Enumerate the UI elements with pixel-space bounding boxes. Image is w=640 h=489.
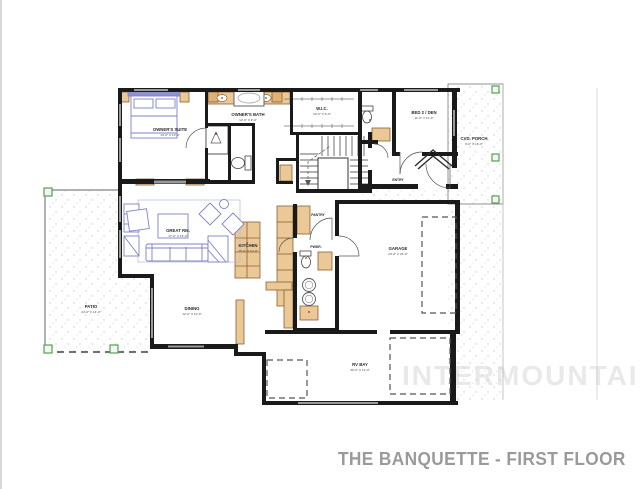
dryer [303, 293, 316, 306]
svg-text:10'-6" X 6'-0": 10'-6" X 6'-0" [313, 112, 331, 116]
porch-area [362, 84, 597, 400]
porch-post [492, 196, 499, 203]
patio-post [44, 188, 52, 196]
label-great-room: GREAT RM. [166, 228, 190, 233]
staircase [300, 136, 368, 190]
armchair [127, 209, 150, 232]
plan-title: THE BANQUETTE - FIRST FLOOR [338, 449, 626, 470]
label-dining: DINING [184, 306, 200, 311]
porch-post [492, 86, 499, 93]
svg-text:14'-0" X 13'-0": 14'-0" X 13'-0" [160, 133, 180, 137]
svg-text:30'-0" X 14'-0": 30'-0" X 14'-0" [350, 368, 370, 372]
svg-text:9'-0" X 16'-0": 9'-0" X 16'-0" [465, 142, 483, 146]
label-bed2: BED 2 / DEN [411, 110, 436, 115]
label-pantry: PANTRY [311, 213, 325, 217]
chaise [208, 236, 228, 262]
sofa [146, 244, 208, 261]
floor-plan-drawing: OWNER'S SUITE 14'-0" X 13'-0" OWNER'S BA… [0, 0, 640, 489]
svg-text:23'-0" X 23'-0": 23'-0" X 23'-0" [388, 252, 408, 256]
svg-text:12'-6" X 9'-0": 12'-6" X 9'-0" [239, 118, 257, 122]
label-garage: GARAGE [389, 246, 408, 251]
shop-stall [390, 338, 450, 394]
patio-post [110, 345, 118, 353]
floor-plan-page: INTERMOUNTAIN [0, 0, 640, 489]
patio-post [44, 345, 52, 353]
toilet-bath2 [361, 106, 373, 123]
svg-text:24'-0" X 14'-0": 24'-0" X 14'-0" [81, 310, 101, 314]
svg-text:15'-0" X 10'-0": 15'-0" X 10'-0" [238, 249, 258, 253]
svg-text:12'-0" X 10'-6": 12'-0" X 10'-6" [182, 312, 202, 316]
tub [234, 90, 264, 106]
toilet-powder [300, 251, 311, 268]
label-entry: ENTRY [392, 178, 404, 182]
toilet-owners [232, 156, 252, 170]
svg-text:11'-0" X 11'-0": 11'-0" X 11'-0" [414, 116, 433, 120]
shower [206, 126, 228, 154]
label-powder: PWDR. [310, 245, 321, 249]
label-shop: RV BAY [352, 362, 368, 367]
washer [303, 279, 316, 292]
label-kitchen: KITCHEN [238, 243, 257, 248]
label-patio: PATIO [85, 304, 98, 309]
label-porch: CVD. PORCH [461, 136, 488, 141]
shop-stall [267, 360, 307, 398]
label-owners-bath: OWNER'S BATH [231, 112, 264, 117]
side-table [220, 200, 229, 209]
label-owners-suite: OWNER'S SUITE [153, 127, 187, 132]
svg-text:17'-0" X 15'-0": 17'-0" X 15'-0" [168, 234, 188, 238]
accent-chair [199, 203, 221, 225]
porch-post [492, 154, 499, 161]
label-wic: W.I.C. [316, 106, 328, 111]
